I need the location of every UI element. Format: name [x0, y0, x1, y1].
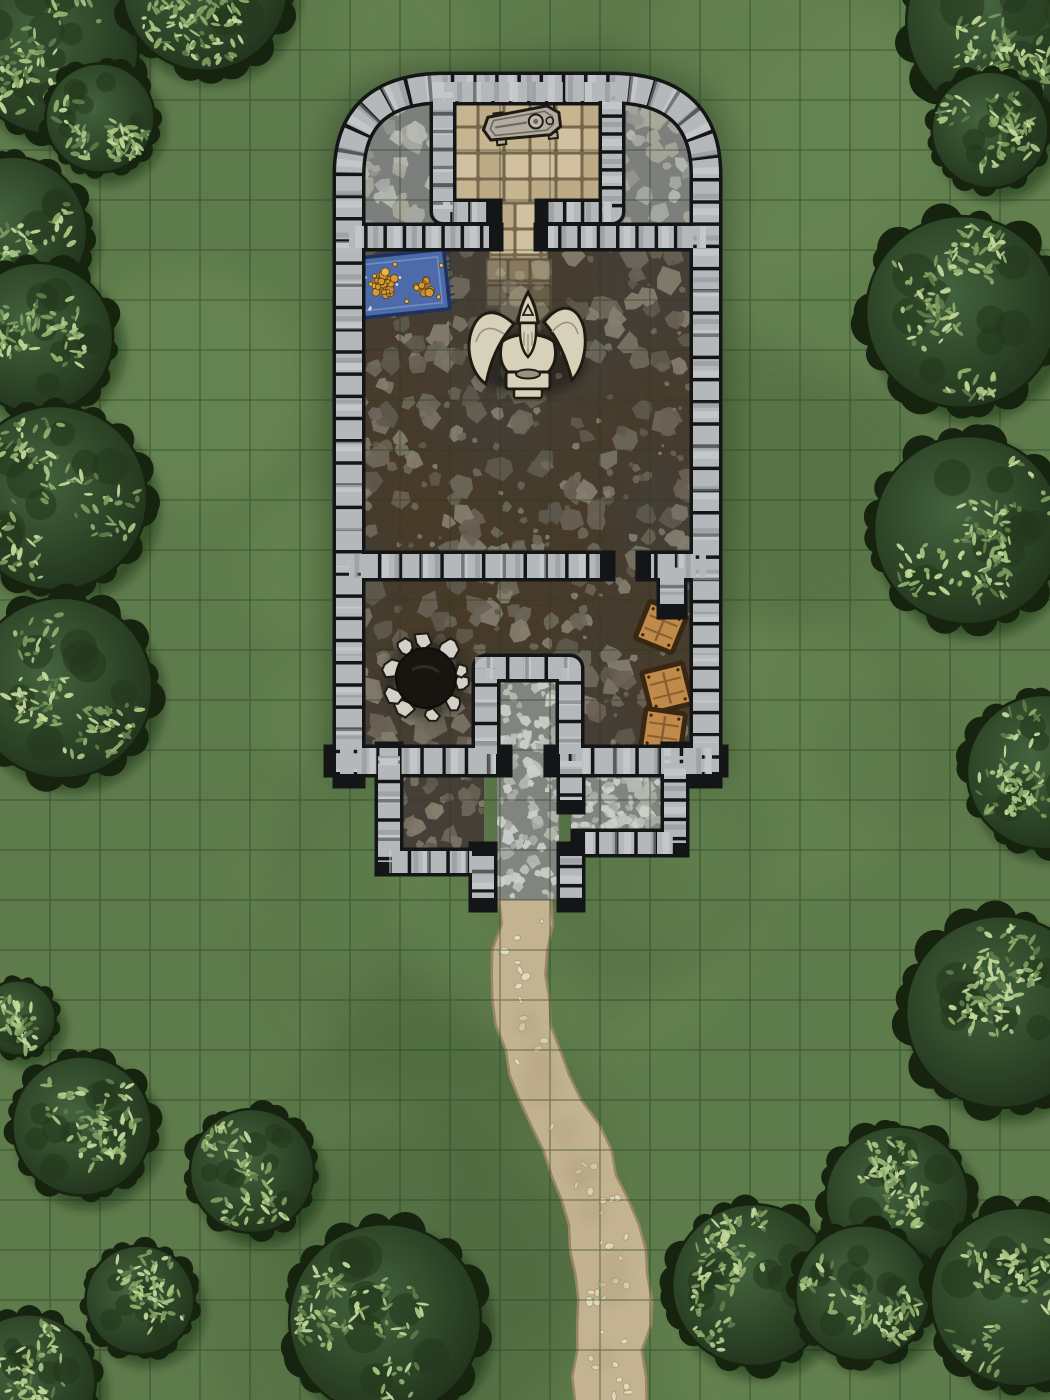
battle-map-canvas — [0, 0, 1050, 1400]
battle-map-image — [0, 0, 1050, 1400]
wooden-crate — [642, 663, 693, 714]
